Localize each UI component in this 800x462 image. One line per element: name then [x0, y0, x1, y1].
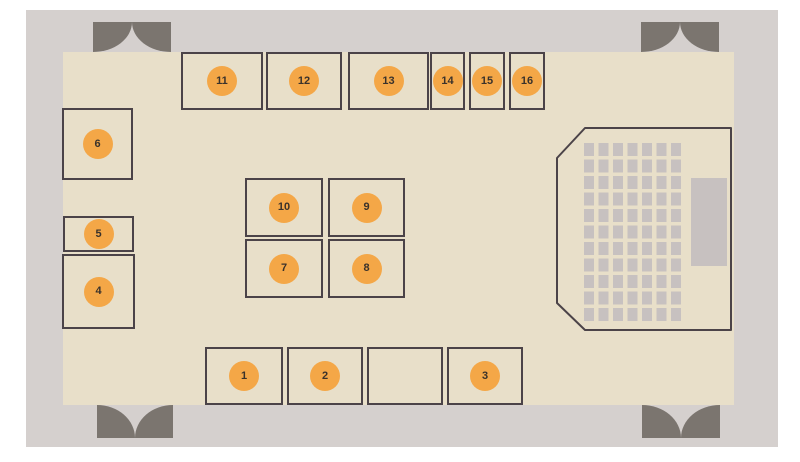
booth-number-marker: 14 [433, 66, 463, 96]
booth-6: 6 [62, 108, 133, 180]
seat [642, 259, 652, 272]
seat [628, 292, 638, 305]
booth-16: 16 [509, 52, 545, 110]
seat [657, 209, 667, 222]
seat [657, 226, 667, 239]
booth-8: 8 [328, 239, 405, 298]
seat [599, 193, 609, 206]
booth-number-marker: 4 [84, 277, 114, 307]
booth-number-marker: 5 [84, 219, 114, 249]
seat [671, 226, 681, 239]
seat [584, 160, 594, 173]
seat [657, 259, 667, 272]
seat [584, 259, 594, 272]
seat [613, 176, 623, 189]
seat [584, 308, 594, 321]
booth-12: 12 [266, 52, 342, 110]
seat [584, 143, 594, 156]
booth-number-marker: 13 [374, 66, 404, 96]
seat [642, 308, 652, 321]
seat [657, 308, 667, 321]
booth-9: 9 [328, 178, 405, 237]
booth-number-marker: 2 [310, 361, 340, 391]
seat [613, 275, 623, 288]
seat [599, 242, 609, 255]
seat [671, 259, 681, 272]
booth-number-marker: 10 [269, 193, 299, 223]
seat [613, 143, 623, 156]
seat [584, 193, 594, 206]
booth-number-marker: 1 [229, 361, 259, 391]
seat [613, 193, 623, 206]
booth-2: 2 [287, 347, 363, 405]
booth-number-marker: 8 [352, 254, 382, 284]
seat [599, 292, 609, 305]
seat [584, 292, 594, 305]
booth-5: 5 [63, 216, 134, 252]
seat [642, 226, 652, 239]
seat [613, 259, 623, 272]
seat [671, 308, 681, 321]
seat [599, 160, 609, 173]
seat [599, 308, 609, 321]
seat [613, 242, 623, 255]
booth-13: 13 [348, 52, 429, 110]
seat [657, 160, 667, 173]
booth-11: 11 [181, 52, 263, 110]
seat [628, 176, 638, 189]
seat [584, 275, 594, 288]
seat [657, 143, 667, 156]
seat [628, 143, 638, 156]
seat [671, 275, 681, 288]
seat [584, 242, 594, 255]
seat [628, 226, 638, 239]
seat [642, 160, 652, 173]
seat [642, 275, 652, 288]
booth-7: 7 [245, 239, 323, 298]
seat [613, 160, 623, 173]
seat [599, 176, 609, 189]
seat [671, 193, 681, 206]
booth-number-marker: 15 [472, 66, 502, 96]
seat [599, 209, 609, 222]
booth-15: 15 [469, 52, 505, 110]
seat [599, 226, 609, 239]
booth-10: 10 [245, 178, 323, 237]
seat [584, 226, 594, 239]
booth-number-marker: 7 [269, 254, 299, 284]
seat [642, 292, 652, 305]
seat [642, 176, 652, 189]
screen [691, 178, 727, 266]
seat [657, 193, 667, 206]
seat [657, 176, 667, 189]
seat [584, 209, 594, 222]
seat [599, 275, 609, 288]
seat [628, 160, 638, 173]
seat [628, 193, 638, 206]
seat [671, 242, 681, 255]
seat [642, 242, 652, 255]
booth-empty [367, 347, 443, 405]
seat [599, 259, 609, 272]
booth-4: 4 [62, 254, 135, 329]
seat [671, 143, 681, 156]
seat [628, 275, 638, 288]
seat [628, 242, 638, 255]
seat [613, 209, 623, 222]
booth-number-marker: 3 [470, 361, 500, 391]
seat [671, 160, 681, 173]
seat [628, 308, 638, 321]
booth-number-marker: 9 [352, 193, 382, 223]
seat [671, 209, 681, 222]
seat [657, 242, 667, 255]
seat [642, 209, 652, 222]
seat [628, 259, 638, 272]
floor-plan: 12345678910111213141516 [0, 0, 800, 462]
seat [671, 176, 681, 189]
seat [628, 209, 638, 222]
booth-3: 3 [447, 347, 523, 405]
seat [613, 226, 623, 239]
booth-number-marker: 11 [207, 66, 237, 96]
booth-14: 14 [430, 52, 465, 110]
booth-number-marker: 12 [289, 66, 319, 96]
seat [642, 193, 652, 206]
seat [613, 308, 623, 321]
seat [584, 176, 594, 189]
seat [657, 275, 667, 288]
booth-1: 1 [205, 347, 283, 405]
seat [642, 143, 652, 156]
seat [657, 292, 667, 305]
booth-number-marker: 16 [512, 66, 542, 96]
booth-number-marker: 6 [83, 129, 113, 159]
seat [671, 292, 681, 305]
seat [613, 292, 623, 305]
seat [599, 143, 609, 156]
